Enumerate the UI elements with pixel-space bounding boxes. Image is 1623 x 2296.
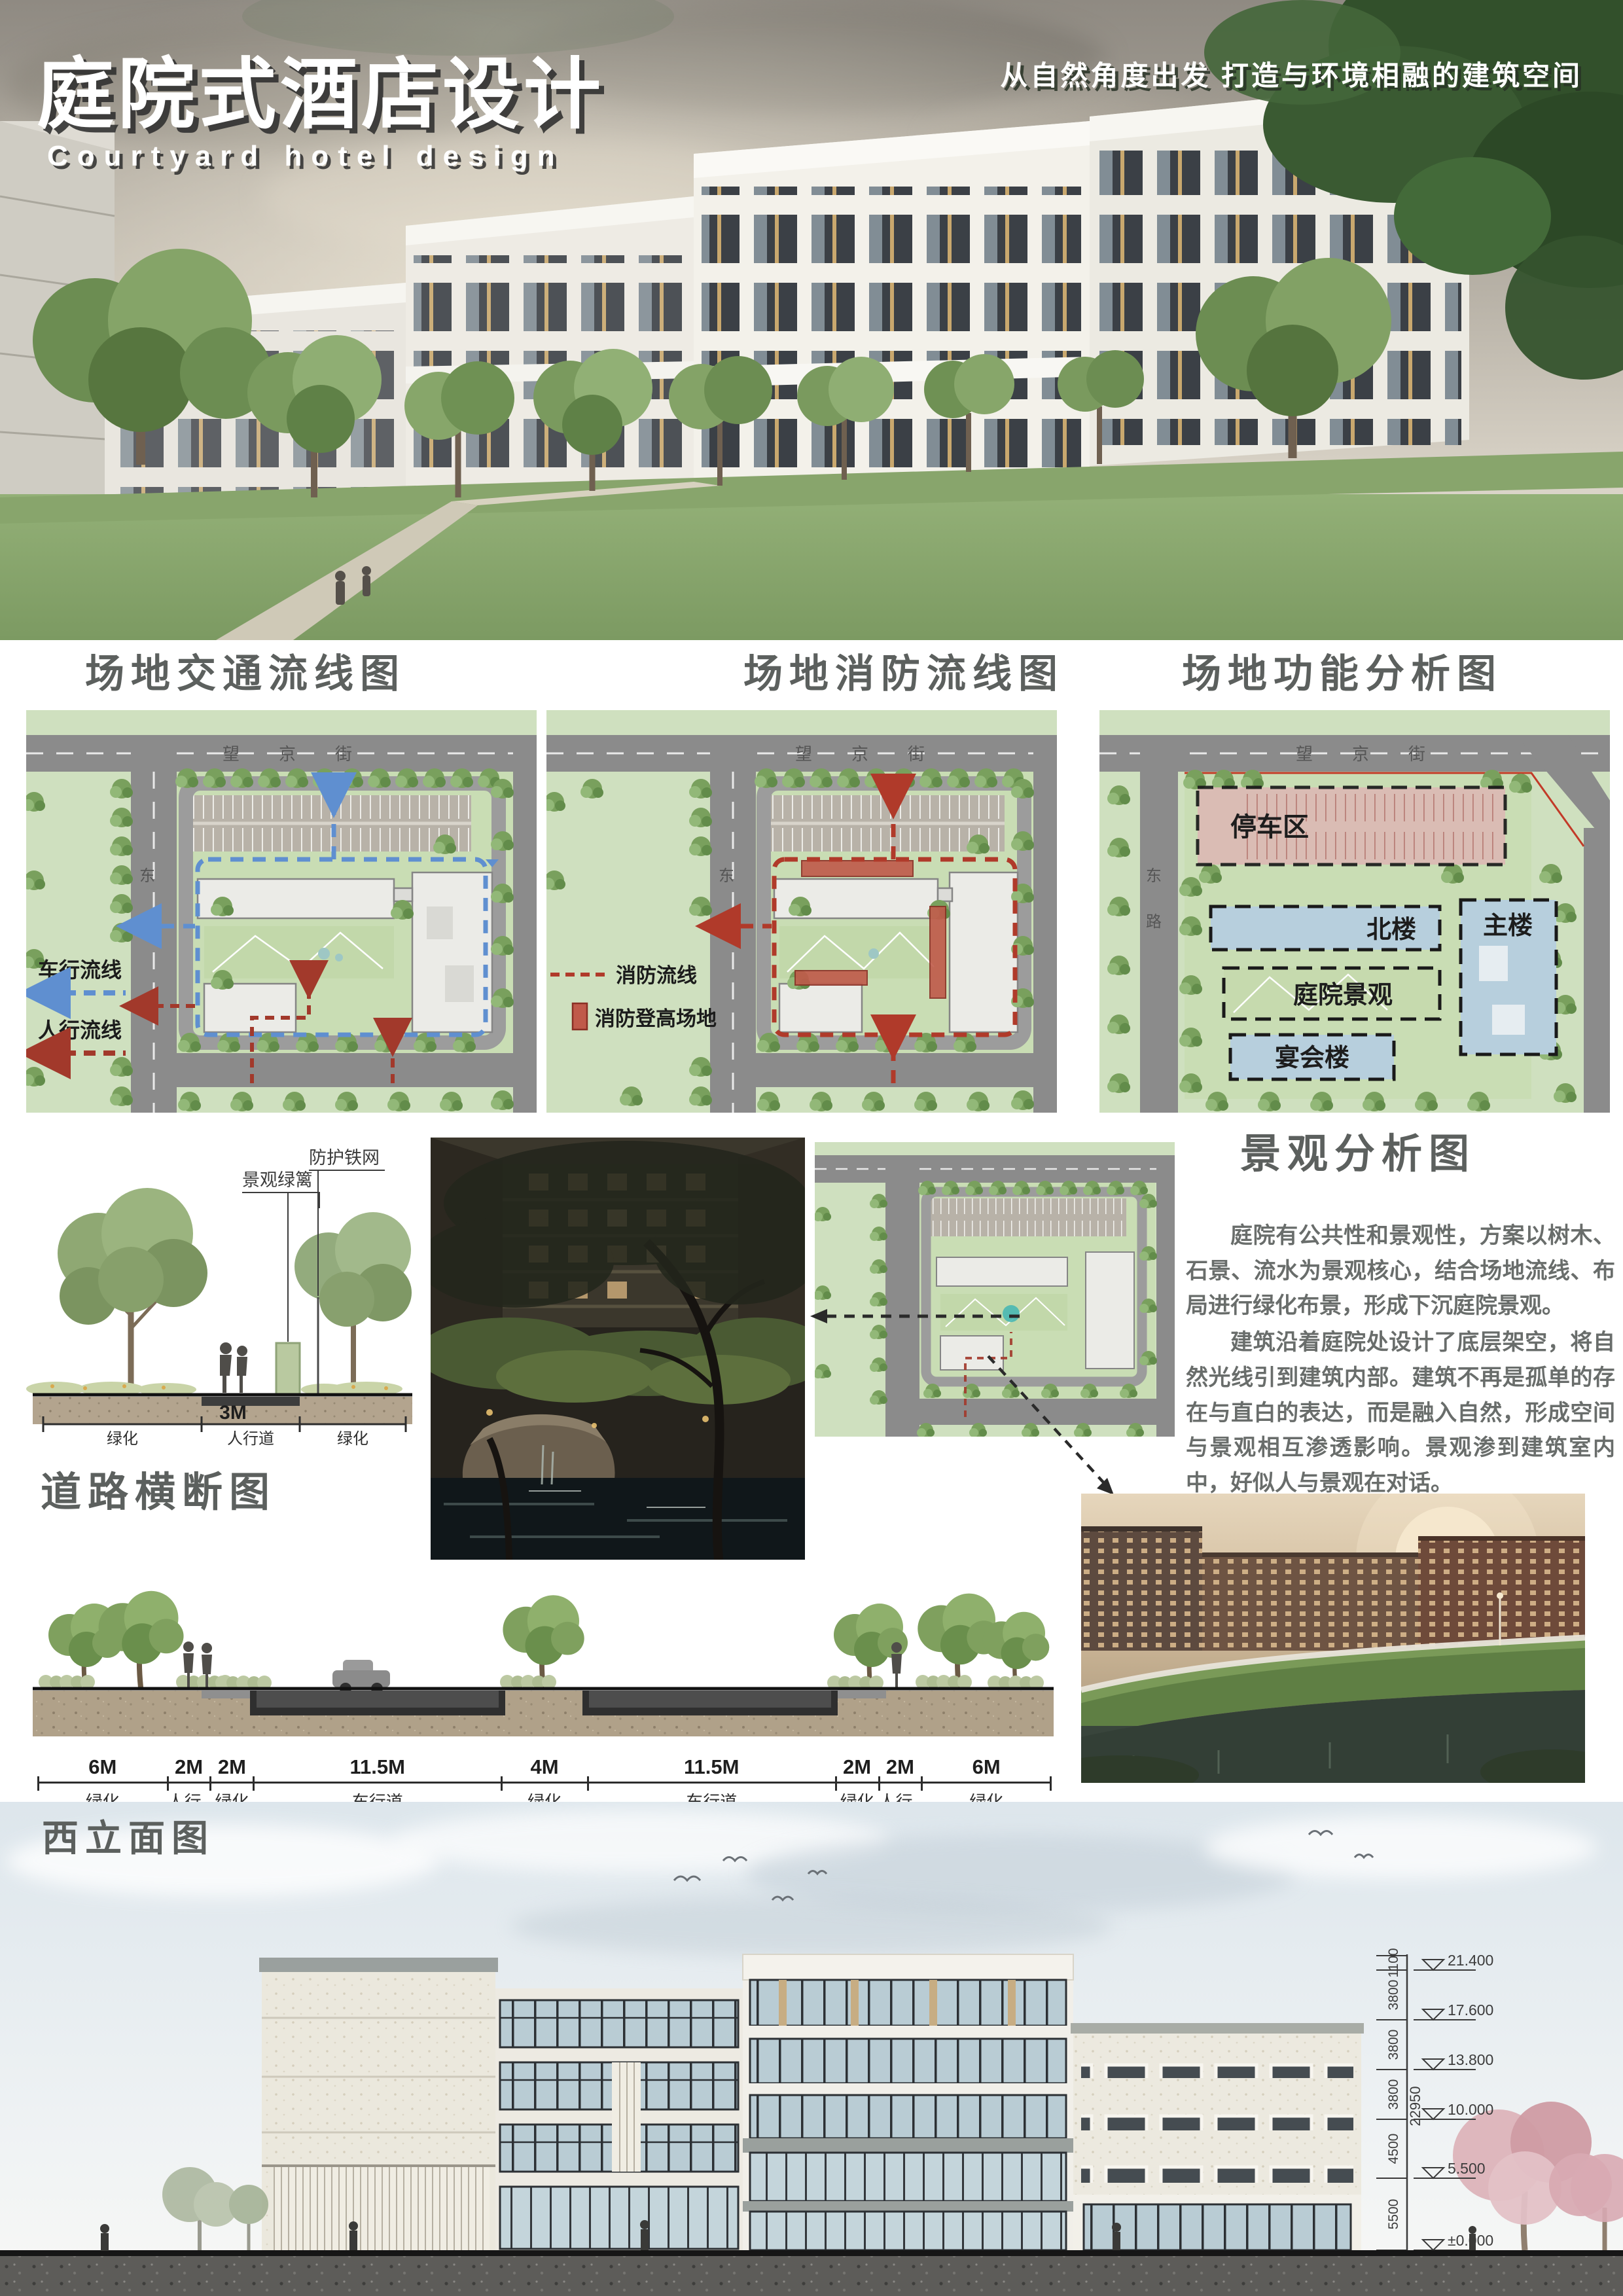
function-plan: 望京街 东路 停车区 北楼 xyxy=(1099,710,1610,1113)
hedge xyxy=(276,1343,300,1394)
heading-west-elevation: 西立面图 xyxy=(42,1820,215,1857)
roadway-left xyxy=(250,1691,505,1715)
board-subtitle-en: Courtyard hotel design xyxy=(47,140,564,173)
dim-3m: 3M xyxy=(219,1402,247,1424)
fire-plan: 望京街 东路 xyxy=(546,710,1057,1113)
road-section-drawing xyxy=(26,1550,1060,1746)
legend-vehicle-label: 车行流线 xyxy=(38,958,122,982)
fire-plan-drawing: 望京街 东路 xyxy=(546,710,1057,1113)
road-name-side: 东路 xyxy=(137,867,155,959)
zone-banquet-label: 宴会楼 xyxy=(1275,1044,1349,1072)
roadway-right xyxy=(582,1691,838,1715)
seg-dim: 3800 xyxy=(1386,1980,1401,2011)
section-people xyxy=(220,1342,247,1393)
level-5500: 5.500 xyxy=(1448,2160,1486,2177)
road-name-side: 东路 xyxy=(1143,867,1162,959)
landscape-paragraphs: 庭院有公共性和景观性，方案以树木、石景、流水为景观核心，结合场地流线、布局进行绿… xyxy=(1186,1219,1615,1503)
fence-label: 防护铁网 xyxy=(309,1148,380,1168)
road-name-side: 东路 xyxy=(716,867,734,959)
seg-dim: 5500 xyxy=(1386,2199,1401,2230)
sidewalk-section-illustration: 景观绿篱 防护铁网 3M 绿化 人行道 绿化 xyxy=(26,1132,419,1446)
landscape-paragraph-2: 建筑沿着庭院处设计了底层架空，将自然光线引到建筑内部。建筑不再是孤单的存在与直白… xyxy=(1186,1325,1615,1501)
zone-north-building: 北楼 xyxy=(1211,906,1440,950)
green-roof-photo-illustration xyxy=(1081,1494,1585,1783)
heading-road-section: 道路横断图 xyxy=(41,1473,276,1513)
road-section-illustration xyxy=(26,1550,1060,1746)
heading-landscape: 景观分析图 xyxy=(1240,1134,1476,1175)
landscape-paragraph-1: 庭院有公共性和景观性，方案以树木、石景、流水为景观核心，结合场地流线、布局进行绿… xyxy=(1186,1219,1615,1324)
traffic-plan-drawing: 望京街 东路 xyxy=(26,710,537,1113)
dim-walkway: 人行道 xyxy=(227,1430,274,1446)
courtyard-photo xyxy=(431,1138,805,1560)
hedge-label: 景观绿篱 xyxy=(242,1170,313,1190)
seg-dim: 3800 xyxy=(1386,2079,1401,2110)
dim-green-right: 绿化 xyxy=(337,1430,368,1446)
zone-courtyard-label: 庭院景观 xyxy=(1293,981,1393,1009)
plan-to-photo-connector xyxy=(806,1301,1022,1331)
level-17600: 17.600 xyxy=(1448,2001,1493,2018)
hero-render: 庭院式酒店设计 Courtyard hotel design 从自然角度出发 打… xyxy=(0,0,1623,640)
section-tree-right xyxy=(294,1212,412,1394)
dim-green-left: 绿化 xyxy=(107,1430,138,1446)
heading-function-plan: 场地功能分析图 xyxy=(1182,655,1503,694)
green-roof-photo xyxy=(1081,1494,1585,1783)
function-plan-drawing: 望京街 东路 停车区 北楼 xyxy=(1099,710,1610,1113)
zone-north-label: 北楼 xyxy=(1366,916,1416,944)
level-10000: 10.000 xyxy=(1448,2101,1493,2118)
zone-courtyard: 庭院景观 xyxy=(1224,968,1440,1019)
west-elevation-drawing: 1100 3800 3800 3800 4500 5500 450 22950 xyxy=(0,1802,1623,2296)
legend-pedestrian-label: 人行流线 xyxy=(38,1018,122,1042)
zone-parking: 停车区 xyxy=(1198,787,1505,865)
road-name-top: 望京街 xyxy=(795,744,964,764)
sidewalk-section-drawing: 景观绿篱 防护铁网 3M 绿化 人行道 绿化 xyxy=(26,1132,419,1446)
seg-dim: 3800 xyxy=(1386,2030,1401,2060)
total-dim: 22950 xyxy=(1407,2086,1423,2126)
board-slogan: 从自然角度出发 打造与环境相融的建筑空间 xyxy=(1000,54,1582,94)
seg-dim: 1100 xyxy=(1386,1948,1401,1977)
seg-dim: 4500 xyxy=(1386,2134,1401,2164)
west-elevation-panel: 1100 3800 3800 3800 4500 5500 450 22950 xyxy=(0,1802,1623,2296)
legend-fire-route-label: 消防流线 xyxy=(616,964,697,987)
board-title: 庭院式酒店设计 xyxy=(37,56,605,134)
traffic-plan: 望京街 东路 xyxy=(26,710,537,1113)
zone-main-building: 主楼 xyxy=(1461,900,1556,1054)
heading-fire-plan: 场地消防流线图 xyxy=(743,655,1064,694)
heading-traffic-plan: 场地交通流线图 xyxy=(85,655,406,694)
legend-fire-area-label: 消防登高场地 xyxy=(595,1007,717,1030)
plan-to-sunset-connector xyxy=(980,1350,1124,1503)
zone-parking-label: 停车区 xyxy=(1230,813,1309,842)
zone-main-label: 主楼 xyxy=(1483,912,1533,940)
level-13800: 13.800 xyxy=(1448,2051,1493,2068)
road-name-top: 望京街 xyxy=(1296,744,1465,764)
road-name-top: 望京街 xyxy=(223,744,391,764)
courtyard-photo-illustration xyxy=(431,1138,805,1560)
presentation-board: 庭院式酒店设计 Courtyard hotel design 从自然角度出发 打… xyxy=(0,0,1623,2296)
section-tree-left xyxy=(58,1188,207,1394)
level-21400: 21.400 xyxy=(1448,1952,1493,1969)
zone-banquet-building: 宴会楼 xyxy=(1230,1035,1394,1079)
